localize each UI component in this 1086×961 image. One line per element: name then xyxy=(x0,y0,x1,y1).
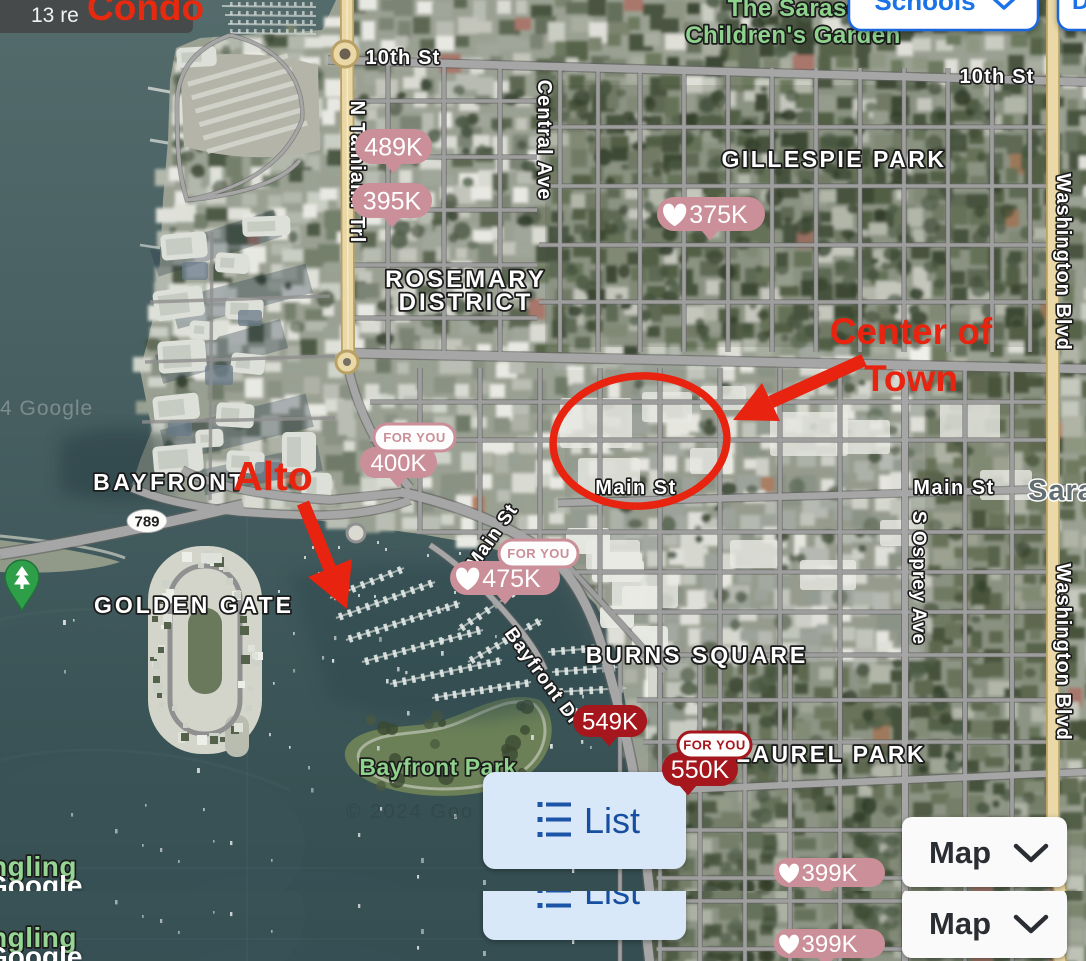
svg-text:BURNS SQUARE: BURNS SQUARE xyxy=(586,642,809,668)
svg-text:550K: 550K xyxy=(671,756,730,784)
svg-text:13 re: 13 re xyxy=(31,4,79,27)
svg-text:10th St: 10th St xyxy=(959,66,1034,88)
svg-text:Center of: Center of xyxy=(830,311,993,352)
svg-text:© 2024 Goo: © 2024 Goo xyxy=(346,801,474,823)
svg-text:Alto: Alto xyxy=(233,453,313,499)
svg-text:489K: 489K xyxy=(364,133,423,161)
svg-text:FOR YOU: FOR YOU xyxy=(507,546,570,561)
svg-text:475K: 475K xyxy=(482,565,541,593)
svg-text:Condo: Condo xyxy=(87,0,204,28)
svg-text:D: D xyxy=(1072,0,1086,15)
svg-text:DISTRICT: DISTRICT xyxy=(399,289,534,316)
svg-text:375K: 375K xyxy=(689,201,748,229)
svg-text:BAYFRONT: BAYFRONT xyxy=(93,469,247,495)
svg-text:Schools: Schools xyxy=(874,0,975,16)
svg-text:FOR YOU: FOR YOU xyxy=(683,738,746,753)
svg-text:Map: Map xyxy=(929,835,991,870)
svg-text:10th St: 10th St xyxy=(365,47,440,69)
svg-text:Saras: Saras xyxy=(1028,475,1086,507)
svg-text:400K: 400K xyxy=(370,450,426,477)
svg-text:GOLDEN GATE: GOLDEN GATE xyxy=(94,592,294,618)
svg-text:395K: 395K xyxy=(363,187,422,215)
svg-text:4 Google: 4 Google xyxy=(0,397,93,420)
svg-text:Main St: Main St xyxy=(595,477,677,499)
svg-text:Main St: Main St xyxy=(913,477,995,499)
svg-text:Washington Blvd: Washington Blvd xyxy=(1052,563,1074,741)
svg-text:FOR YOU: FOR YOU xyxy=(383,430,446,445)
svg-text:LAUREL PARK: LAUREL PARK xyxy=(736,741,926,767)
svg-text:549K: 549K xyxy=(582,708,638,735)
svg-text:S Osprey Ave: S Osprey Ave xyxy=(908,511,929,645)
svg-text:399K: 399K xyxy=(802,860,858,887)
svg-text:Central Ave: Central Ave xyxy=(533,80,555,201)
svg-text:789: 789 xyxy=(134,514,159,531)
svg-text:N Tamiami Trl: N Tamiami Trl xyxy=(346,101,368,244)
svg-text:GILLESPIE PARK: GILLESPIE PARK xyxy=(722,146,947,172)
svg-text:Washington Blvd: Washington Blvd xyxy=(1052,173,1074,351)
svg-text:List: List xyxy=(584,800,640,841)
svg-text:Town: Town xyxy=(864,358,958,399)
